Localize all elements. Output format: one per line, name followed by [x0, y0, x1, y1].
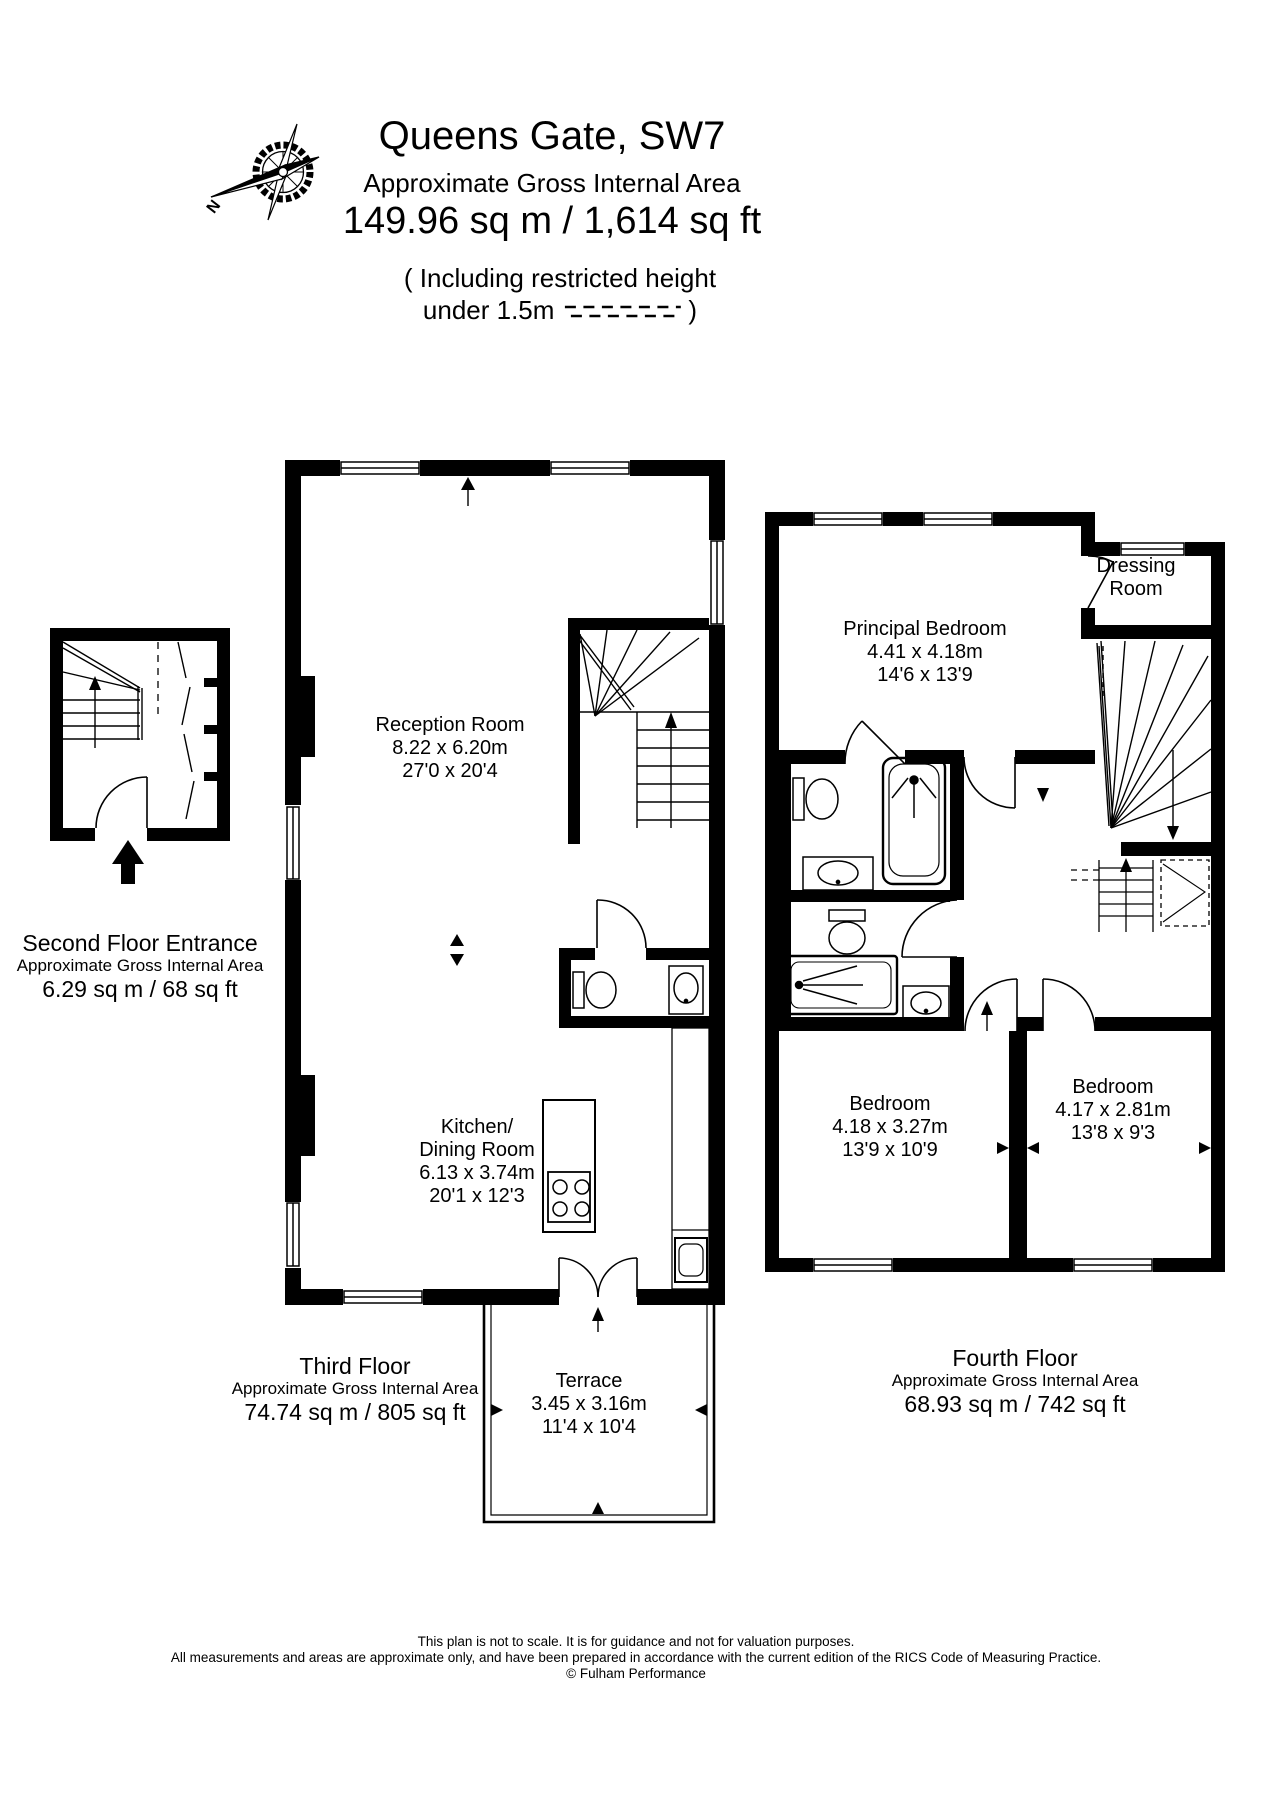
- restricted-height-dashes: [1071, 870, 1101, 880]
- stairs-down-arrow: [1167, 826, 1179, 840]
- floor-subtitle: Approximate Gross Internal Area: [232, 1379, 479, 1398]
- room-dims-imperial: 20'1 x 12'3: [419, 1185, 535, 1208]
- bedroom-landing-door: [964, 757, 1015, 808]
- restricted-height-note-line1: ( Including restricted height: [404, 263, 716, 294]
- room-label-dressing-room: Dressing Room: [1097, 555, 1176, 601]
- fourth-floor-stairs: [1097, 641, 1211, 830]
- toilet-tank: [793, 778, 804, 820]
- room-dims-metric: 4.18 x 3.27m: [832, 1116, 948, 1139]
- shower-head: [796, 982, 803, 989]
- room-dims-imperial: 14'6 x 13'9: [843, 664, 1006, 687]
- entrance-door: [96, 777, 147, 828]
- toilet-bowl: [829, 922, 865, 954]
- room-name-2: Room: [1097, 578, 1176, 601]
- floor-area: 6.29 sq m / 68 sq ft: [17, 976, 264, 1002]
- door-marker-up: [981, 1001, 993, 1031]
- toilet-bowl: [806, 779, 838, 819]
- disclaimer-line3: © Fulham Performance: [0, 1666, 1272, 1682]
- disclaimer-line1: This plan is not to scale. It is for gui…: [0, 1634, 1272, 1650]
- washbasin: [674, 973, 698, 1003]
- room-label-terrace: Terrace 3.45 x 3.16m 11'4 x 10'4: [531, 1370, 647, 1439]
- toilet-tank: [829, 910, 865, 921]
- toilet-tank: [573, 972, 584, 1008]
- room-dims-metric: 8.22 x 6.20m: [376, 737, 525, 760]
- room-label-bedroom-left: Bedroom 4.18 x 3.27m 13'9 x 10'9: [832, 1093, 948, 1162]
- floor-name: Second Floor Entrance: [17, 931, 264, 956]
- stairs-arrow: [665, 712, 677, 728]
- third-floor-label: Third Floor Approximate Gross Internal A…: [232, 1354, 479, 1425]
- restricted-height-dash-symbol: [562, 301, 680, 321]
- floor-name: Fourth Floor: [892, 1346, 1139, 1371]
- floor-subtitle: Approximate Gross Internal Area: [892, 1371, 1139, 1390]
- fourth-floor-label: Fourth Floor Approximate Gross Internal …: [892, 1346, 1139, 1417]
- restricted-height-close-paren: ): [688, 295, 697, 326]
- room-dims-metric: 3.45 x 3.16m: [531, 1393, 647, 1416]
- shower-head: [910, 776, 918, 784]
- top-marker: [461, 477, 475, 506]
- room-name: Bedroom: [832, 1093, 948, 1116]
- wc-door: [597, 900, 646, 948]
- room-name: Dressing: [1097, 555, 1176, 578]
- total-area: 149.96 sq m / 1,614 sq ft: [343, 200, 761, 243]
- steps-arrow: [1120, 858, 1132, 872]
- door-marker-down: [1037, 788, 1049, 802]
- room-name: Principal Bedroom: [843, 618, 1006, 641]
- floor-area: 74.74 sq m / 805 sq ft: [232, 1399, 479, 1425]
- floor-subtitle: Approximate Gross Internal Area: [17, 956, 264, 975]
- room-name: Kitchen/: [419, 1116, 535, 1139]
- room-dims-metric: 4.41 x 4.18m: [843, 641, 1006, 664]
- bedroom-right-door: [1043, 979, 1095, 1031]
- second-floor-plan: [50, 628, 230, 888]
- compass-north-label: N: [205, 197, 224, 217]
- disclaimer: This plan is not to scale. It is for gui…: [0, 1634, 1272, 1682]
- second-floor-label: Second Floor Entrance Approximate Gross …: [17, 931, 264, 1002]
- floorplan-page: N Queens Gate, SW7 Approximate Gross Int…: [0, 0, 1272, 1800]
- room-dims-metric: 6.13 x 3.74m: [419, 1162, 535, 1185]
- restricted-height-note-line2: under 1.5m ): [423, 295, 697, 326]
- kitchen-island: [543, 1100, 595, 1232]
- mid-marker: [450, 934, 464, 966]
- ensuite-bathroom: [793, 721, 945, 890]
- restricted-height-text: under 1.5m: [423, 295, 555, 326]
- terrace-door-marker: [592, 1307, 604, 1332]
- compass-icon: N: [205, 120, 335, 225]
- room-dims-metric: 4.17 x 2.81m: [1055, 1099, 1171, 1122]
- disclaimer-line2: All measurements and areas are approxima…: [0, 1650, 1272, 1666]
- toilet-bowl: [586, 972, 616, 1008]
- floor-name: Third Floor: [232, 1354, 479, 1379]
- room-label-bedroom-right: Bedroom 4.17 x 2.81m 13'8 x 9'3: [1055, 1076, 1171, 1145]
- bedroom-left-door: [965, 979, 1017, 1031]
- third-floor-stairs: [573, 630, 709, 828]
- washbasin-vanity: [903, 986, 949, 1020]
- terrace-doors: [559, 1258, 637, 1297]
- shower-room-door: [902, 900, 957, 957]
- room-name-2: Dining Room: [419, 1139, 535, 1162]
- room-dims-imperial: 11'4 x 10'4: [531, 1416, 647, 1439]
- shower-room: [785, 900, 957, 1020]
- room-dims-imperial: 27'0 x 20'4: [376, 760, 525, 783]
- room-name: Bedroom: [1055, 1076, 1171, 1099]
- wardrobe: [1161, 860, 1209, 926]
- room-name: Reception Room: [376, 714, 525, 737]
- room-label-reception: Reception Room 8.22 x 6.20m 27'0 x 20'4: [376, 714, 525, 783]
- entry-arrow: [112, 840, 144, 884]
- floor-area: 68.93 sq m / 742 sq ft: [892, 1391, 1139, 1417]
- cupboard-doors: [178, 642, 194, 819]
- room-label-principal-bedroom: Principal Bedroom 4.41 x 4.18m 14'6 x 13…: [843, 618, 1006, 687]
- page-title: Queens Gate, SW7: [379, 114, 726, 159]
- kitchen-counter: [672, 1028, 709, 1289]
- room-label-kitchen: Kitchen/ Dining Room 6.13 x 3.74m 20'1 x…: [419, 1116, 535, 1208]
- room-dims-imperial: 13'9 x 10'9: [832, 1139, 948, 1162]
- room-name: Terrace: [531, 1370, 647, 1393]
- room-dims-imperial: 13'8 x 9'3: [1055, 1122, 1171, 1145]
- page-subtitle: Approximate Gross Internal Area: [363, 168, 740, 199]
- entrance-stairs: [63, 642, 142, 748]
- second-floor-walls: [50, 628, 230, 841]
- compass: N: [205, 120, 335, 225]
